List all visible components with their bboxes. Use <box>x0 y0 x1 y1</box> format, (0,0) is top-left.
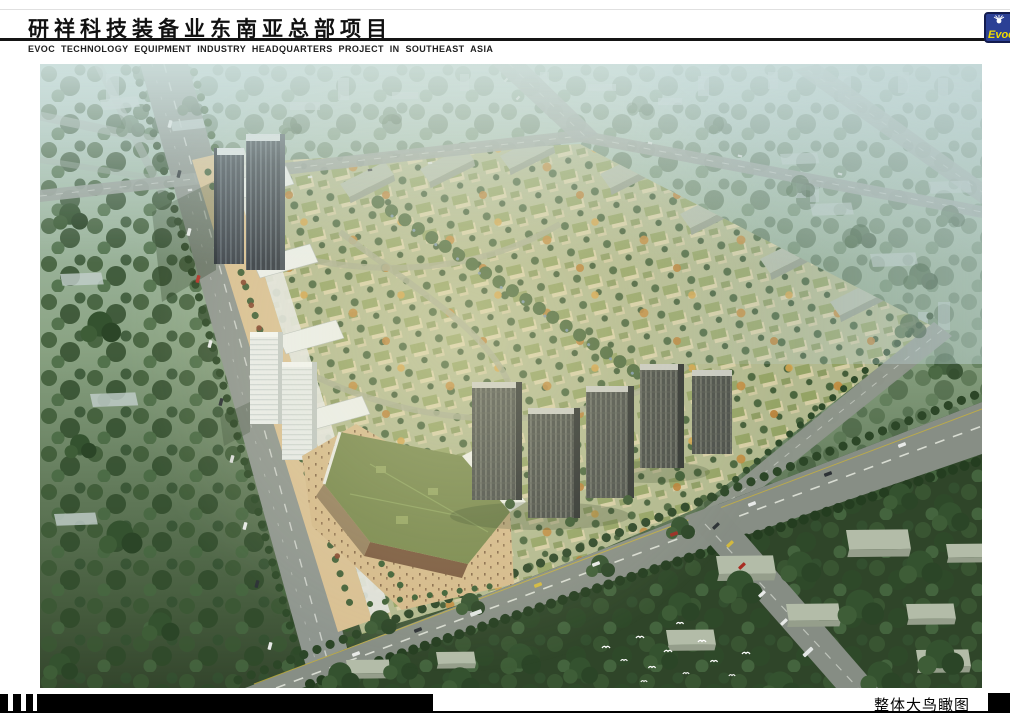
presentation-board: 研祥科技装备业东南亚总部项目 EVOC TECHNOLOGY EQUIPMENT… <box>0 0 1010 714</box>
aerial-rendering <box>40 64 982 688</box>
header-rule <box>0 38 1010 41</box>
image-caption: 整体大鸟瞰图 <box>874 694 970 714</box>
header-faint-rule <box>0 9 1010 10</box>
footer-corner-square <box>988 693 1010 711</box>
evoc-logo: Evoc <box>984 12 1010 43</box>
main-rendering <box>40 64 982 688</box>
sunburst-icon <box>992 15 1006 24</box>
page-subtitle: EVOC TECHNOLOGY EQUIPMENT INDUSTRY HEADQ… <box>28 44 493 54</box>
footer-baseline <box>0 711 1010 713</box>
evoc-logo-text: Evoc <box>988 29 1010 41</box>
